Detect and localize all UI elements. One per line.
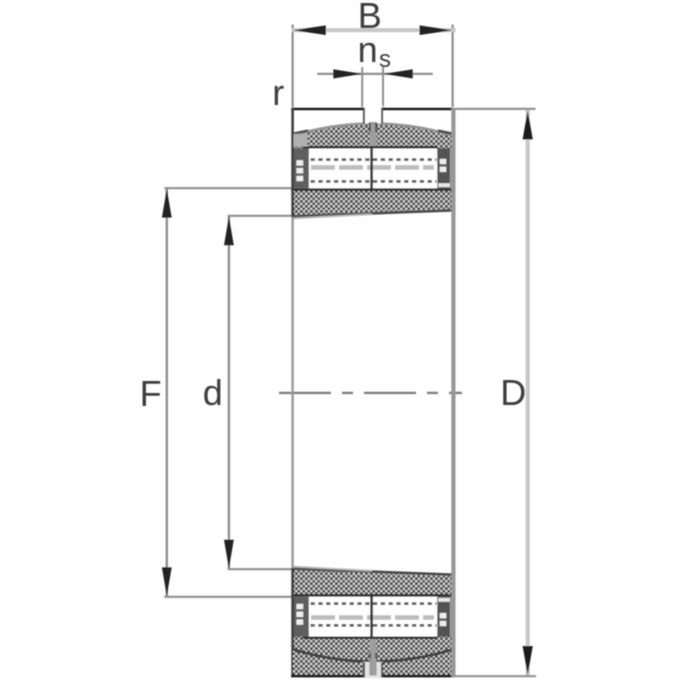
svg-text:F: F — [140, 373, 162, 414]
svg-text:D: D — [500, 372, 526, 413]
svg-text:d: d — [203, 372, 223, 413]
svg-text:s: s — [379, 46, 391, 73]
svg-text:r: r — [272, 72, 284, 113]
svg-text:n: n — [358, 29, 378, 70]
